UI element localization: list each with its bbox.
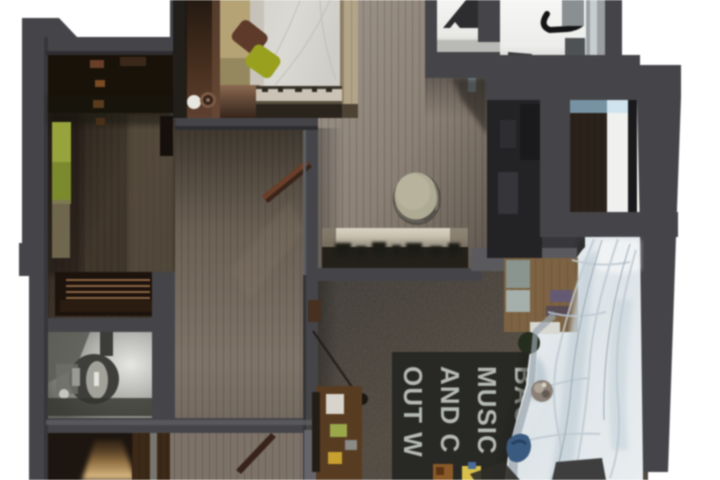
svg-text:MUSIC: MUSIC	[472, 366, 502, 455]
svg-text:AND C: AND C	[435, 366, 465, 453]
svg-text:OUT W: OUT W	[398, 366, 428, 458]
